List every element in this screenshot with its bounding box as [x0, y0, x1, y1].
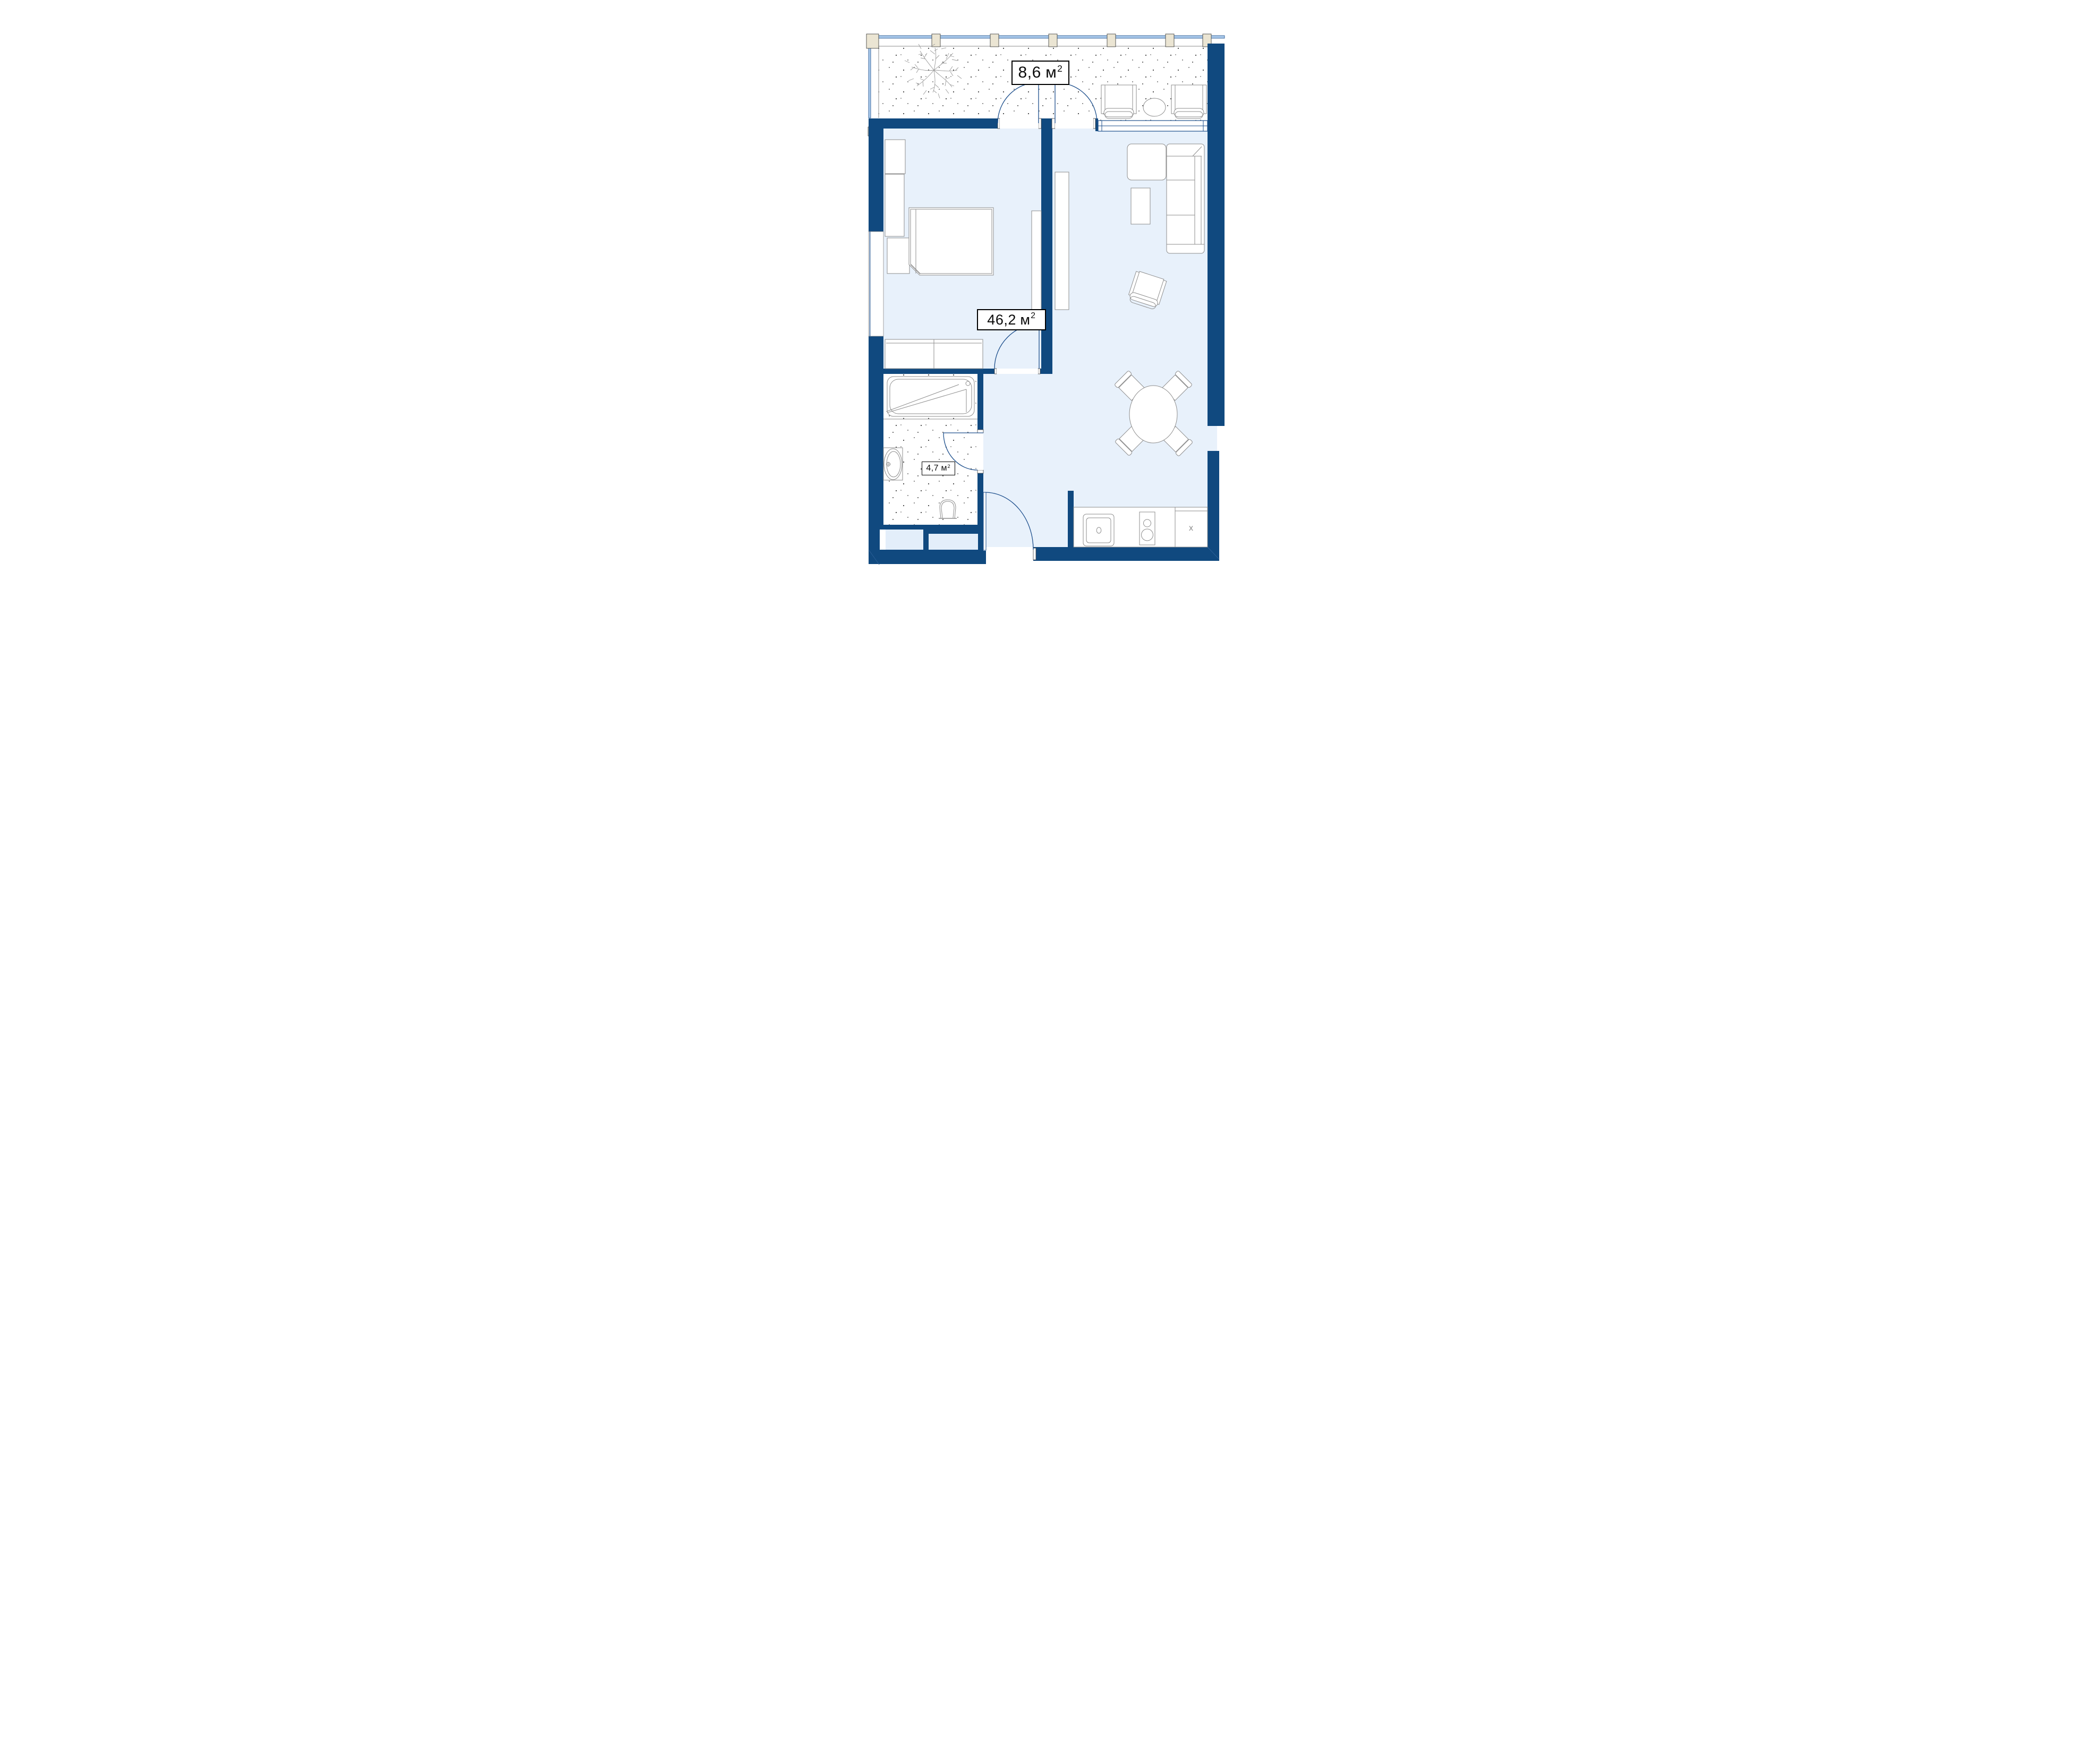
nightstand [887, 238, 909, 274]
kitchen-unit-marker: x [1187, 524, 1196, 533]
jamb [1093, 118, 1095, 129]
area-unit: м [1020, 313, 1030, 327]
bed [909, 208, 993, 275]
opening-balcony-right [1055, 118, 1093, 129]
wall-divider [1041, 129, 1052, 374]
mullion [1166, 34, 1174, 47]
wall-right-lower [1208, 451, 1219, 561]
jamb [1038, 369, 1040, 374]
sofa-ottoman [1127, 144, 1166, 180]
wall-bottom-right [1033, 547, 1219, 561]
area-label-balcony: 8,6м2 [1011, 61, 1069, 85]
niche-left [886, 530, 923, 550]
chair-backrest [1104, 108, 1134, 117]
bathtub [886, 377, 974, 416]
jamb [1052, 118, 1055, 129]
opening-bathroom [977, 433, 983, 470]
right-wall-gap-floor [1208, 426, 1217, 451]
bathroom-sink [883, 448, 903, 480]
area-label-bathroom: 4,7м2 [922, 462, 955, 475]
wall-top-bedroom [869, 118, 998, 129]
jamb [977, 430, 983, 433]
area-value: 4,7 [926, 464, 939, 473]
area-value: 8,6 [1018, 65, 1041, 81]
area-value: 46,2 [987, 313, 1016, 327]
mullion-corner [866, 34, 879, 48]
tv-bench-living [1055, 172, 1069, 310]
living-window [1098, 121, 1208, 131]
bathtub-outer [887, 377, 974, 416]
bed-outline [909, 208, 993, 275]
area-unit: м [941, 464, 948, 473]
chair-armrest [1171, 85, 1175, 114]
balcony-table [1143, 98, 1166, 116]
bedroom-window [869, 232, 883, 336]
chair-armrest [1133, 85, 1136, 114]
cabinet [885, 174, 904, 236]
mullion [932, 34, 940, 47]
area-unit: м [1045, 65, 1057, 81]
floorplan-page: 8,6м2 46,2м2 4,7м2 x [700, 0, 1400, 581]
wall-right-upper [1208, 44, 1225, 426]
wall-left-top [869, 118, 883, 232]
wall-bathroom-right-upper [977, 374, 983, 430]
sofa-outline [1167, 144, 1204, 253]
chair-backrest [1174, 108, 1204, 117]
coffee-table [1131, 188, 1150, 224]
wall-left-bottom [869, 336, 883, 525]
opening-balcony-left [1000, 118, 1039, 129]
wall-bathroom-right-lower [977, 473, 983, 550]
tv-bench-bedroom [1032, 211, 1041, 310]
niche-white [880, 530, 886, 550]
dresser [885, 339, 983, 369]
wall-entry-stub [983, 551, 986, 564]
jamb [977, 470, 983, 473]
hall-floor [983, 374, 1052, 547]
opening-bedroom [997, 369, 1038, 374]
jamb [1033, 548, 1036, 560]
balcony-chair-left [1101, 85, 1136, 118]
wall-bedroom-bottom-left [883, 369, 994, 374]
wardrobe [885, 140, 905, 174]
mullion [990, 34, 999, 47]
wall-bedroom-bottom-right [1040, 369, 1052, 374]
mullion [1049, 34, 1057, 47]
mullion [1107, 34, 1116, 47]
wall-top-center-post [1041, 118, 1052, 129]
floorplan-canvas [700, 0, 1400, 581]
door-leaf [983, 492, 986, 550]
chair-armrest [1203, 85, 1206, 114]
corner-sofa [1167, 144, 1204, 253]
area-label-main: 46,2м2 [977, 309, 1046, 330]
dining-table [1129, 386, 1177, 443]
balcony-chair-right [1171, 85, 1206, 118]
jamb [994, 369, 997, 374]
toilet [939, 500, 957, 518]
wall-kitchen-stub [1068, 491, 1074, 547]
bedroom-window-cavity [869, 232, 883, 336]
niche-right [929, 534, 978, 550]
jamb [1039, 118, 1041, 129]
chair-armrest [1101, 85, 1105, 114]
